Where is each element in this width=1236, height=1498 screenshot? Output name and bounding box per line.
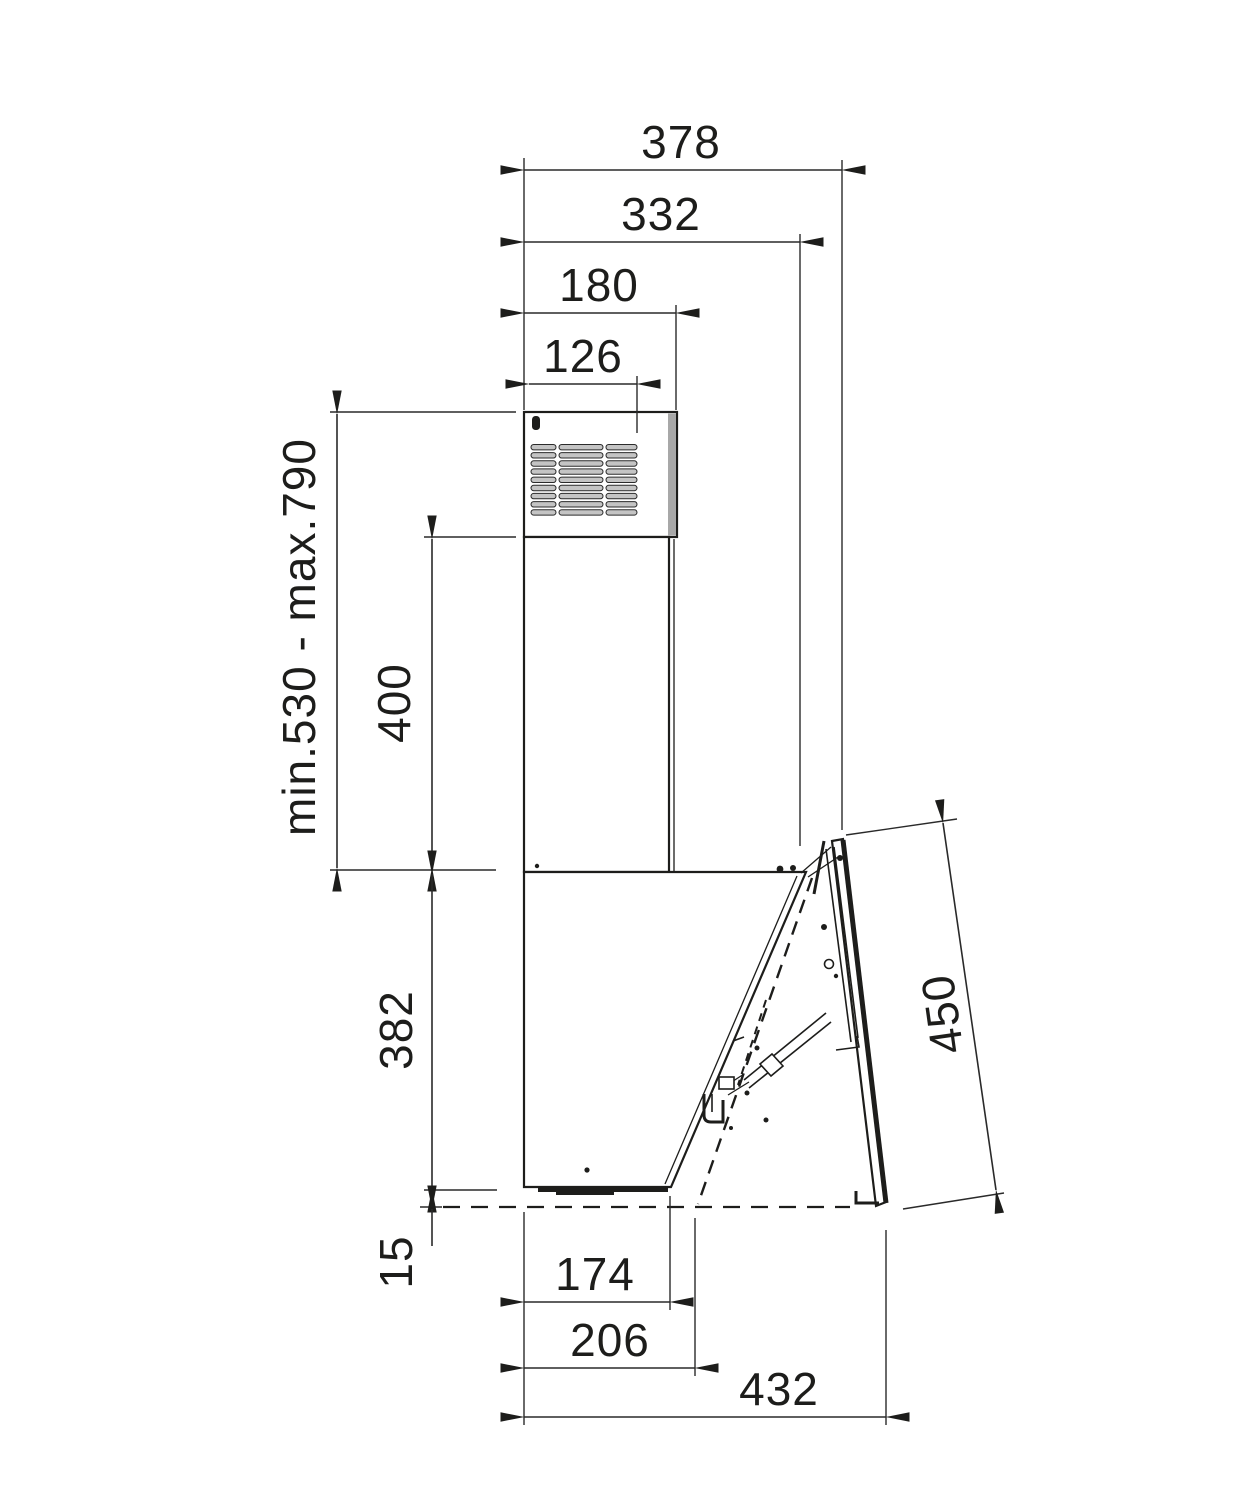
vent-slat [559,453,603,458]
ext-450-bottom [903,1193,1004,1209]
hinge-dot-3 [837,855,843,861]
vent-slat [606,485,637,490]
vent-slat [606,445,637,450]
diagram-canvas: 378 332 180 126 min.530 - max.790 400 38… [0,0,1236,1498]
dim-overall-depth-bottom: 432 [524,1363,886,1417]
hinge-dot-1 [777,866,784,873]
dim-bottom-depth-open: 206 [524,1314,695,1368]
vent-slat [606,510,637,515]
dim-450-label: 450 [911,971,974,1057]
dim-378-label: 378 [641,116,721,168]
dim-chimney-depth: 180 [524,259,676,313]
dim-body-bottom-depth: 174 [524,1248,670,1302]
dim-overall-depth-top: 378 [524,116,842,170]
vent-slat [531,493,556,498]
dim-body-height: 382 [370,874,432,1189]
vent-slat [531,485,556,490]
dim-duct-offset: 126 [529,330,637,384]
dim-332-label: 332 [621,188,701,240]
vent-housing-latch [532,416,540,430]
body-top-dot [535,864,539,868]
vent-slat [559,502,603,507]
ext-450-top [846,819,957,835]
dim-180-label: 180 [559,259,639,311]
vent-slat [559,461,603,466]
strut-slider [760,1054,783,1076]
mech-dot-2 [745,1091,750,1096]
hinge-link-1 [801,847,831,873]
vent-slat [559,485,603,490]
pivot-block [719,1077,734,1089]
vent-slat [531,453,556,458]
mech-dot-3 [764,1118,769,1123]
vent-slat [606,453,637,458]
vent-slat [531,510,556,515]
vent-slat [606,461,637,466]
vent-slat [531,461,556,466]
vent-housing-shade [668,414,676,536]
dim-126-label: 126 [543,330,623,382]
vent-slat [606,477,637,482]
dim-400-label: 400 [368,663,420,743]
dim-432-label: 432 [739,1363,819,1415]
mech-dot-1 [755,1046,760,1051]
vent-slat [559,469,603,474]
vent-slat [531,477,556,482]
hood-dimension-drawing: 378 332 180 126 min.530 - max.790 400 38… [0,0,1236,1498]
dim-206-label: 206 [570,1314,650,1366]
dim-chimney-extension: 400 [368,539,432,868]
vent-slat [531,469,556,474]
dim-15-label: 15 [370,1235,422,1288]
vent-slat [559,510,603,515]
body-dot [584,1167,589,1172]
vent-slat [559,477,603,482]
panel-screw-hole [825,960,834,969]
vent-slat [531,445,556,450]
front-panel-outer-edge [843,840,886,1203]
mech-dot-4 [729,1126,733,1130]
vent-slat [559,445,603,450]
hinge-dot-2 [790,865,796,871]
hinge-dot-4 [821,924,827,930]
strut-upper-2 [749,1022,831,1088]
panel-screw-dot [834,974,838,978]
hood-body [524,872,806,1187]
dim-174-label: 174 [555,1248,635,1300]
hinge-link-2 [808,857,838,877]
dim-height-range-label: min.530 - max.790 [273,438,325,836]
chimney [524,537,669,872]
vent-slat [606,502,637,507]
dim-depth-to-hinge: 332 [524,188,800,242]
dim-mounting-height-range: min.530 - max.790 [273,414,337,868]
vent-slat [606,493,637,498]
dim-front-panel-length: 450 [911,823,996,1190]
hood-outline [524,412,806,1191]
vent-slat [559,493,603,498]
vent-grille [531,445,637,516]
dim-382-label: 382 [370,990,422,1070]
vent-slat [531,502,556,507]
vent-slat [606,469,637,474]
